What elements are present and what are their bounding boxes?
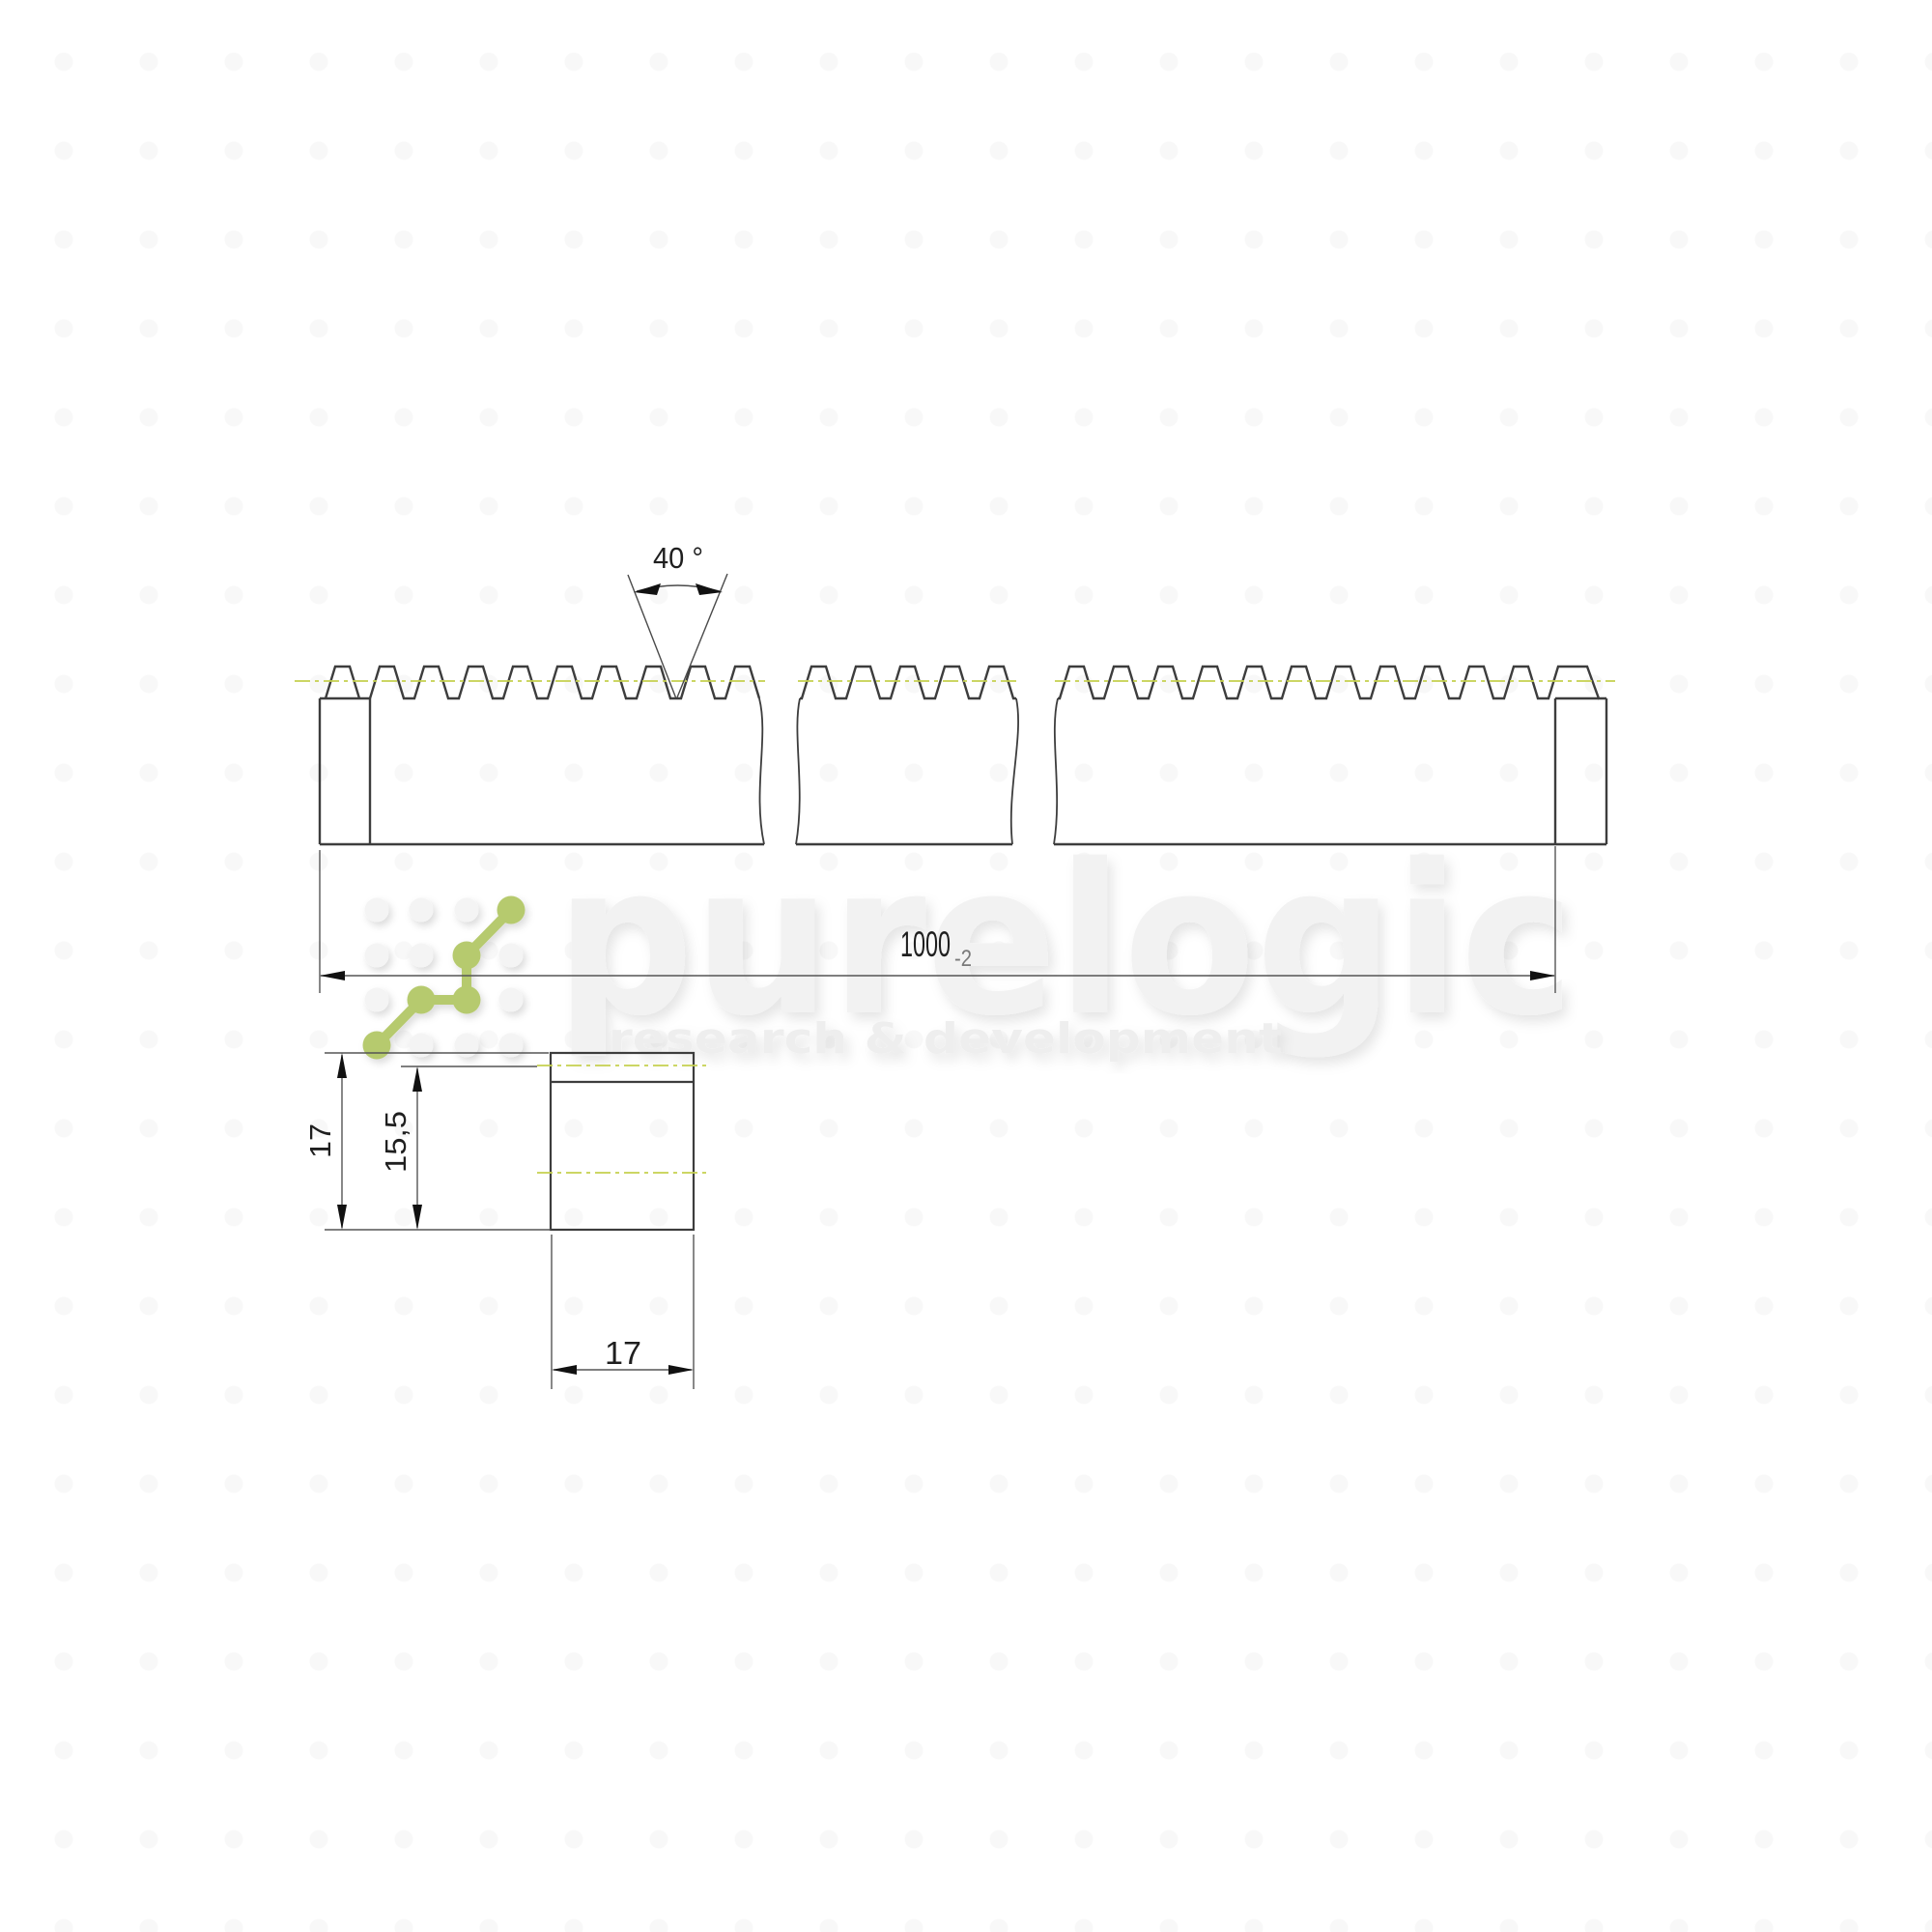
width-dimension: 17 [552,1235,694,1389]
rack-teeth-right-segment [1058,667,1606,698]
length-dimension-text: 1000 [900,924,951,964]
rack-side-view [320,667,1606,844]
total-height-dimension: 17 [303,1053,551,1230]
pitch-height-dimension: 15,5 [379,1066,537,1230]
logo-zigzag-connectors [377,910,511,1045]
technical-drawing: purelogic research & development [0,0,1932,1932]
drawing-canvas: purelogic research & development [0,0,1932,1932]
watermark-tagline-text: research & development [609,1014,1282,1064]
rack-left-end-tooth [326,667,359,698]
rack-teeth-left-segment [370,667,759,698]
section-outline [551,1053,694,1230]
dot-grid-zigzag-logo-icon [363,896,526,1060]
watermark: purelogic research & development [363,819,1576,1064]
total-height-dimension-text: 17 [303,1123,337,1158]
rack-teeth-middle-segment [800,667,1016,698]
rack-left-end-block [320,698,370,844]
pitch-height-dimension-text: 15,5 [379,1111,412,1173]
rack-section-view [537,1053,710,1230]
width-dimension-text: 17 [605,1335,641,1371]
length-tolerance-text: -2 [954,946,972,972]
tooth-angle-dimension-text: 40 ° [653,541,703,575]
